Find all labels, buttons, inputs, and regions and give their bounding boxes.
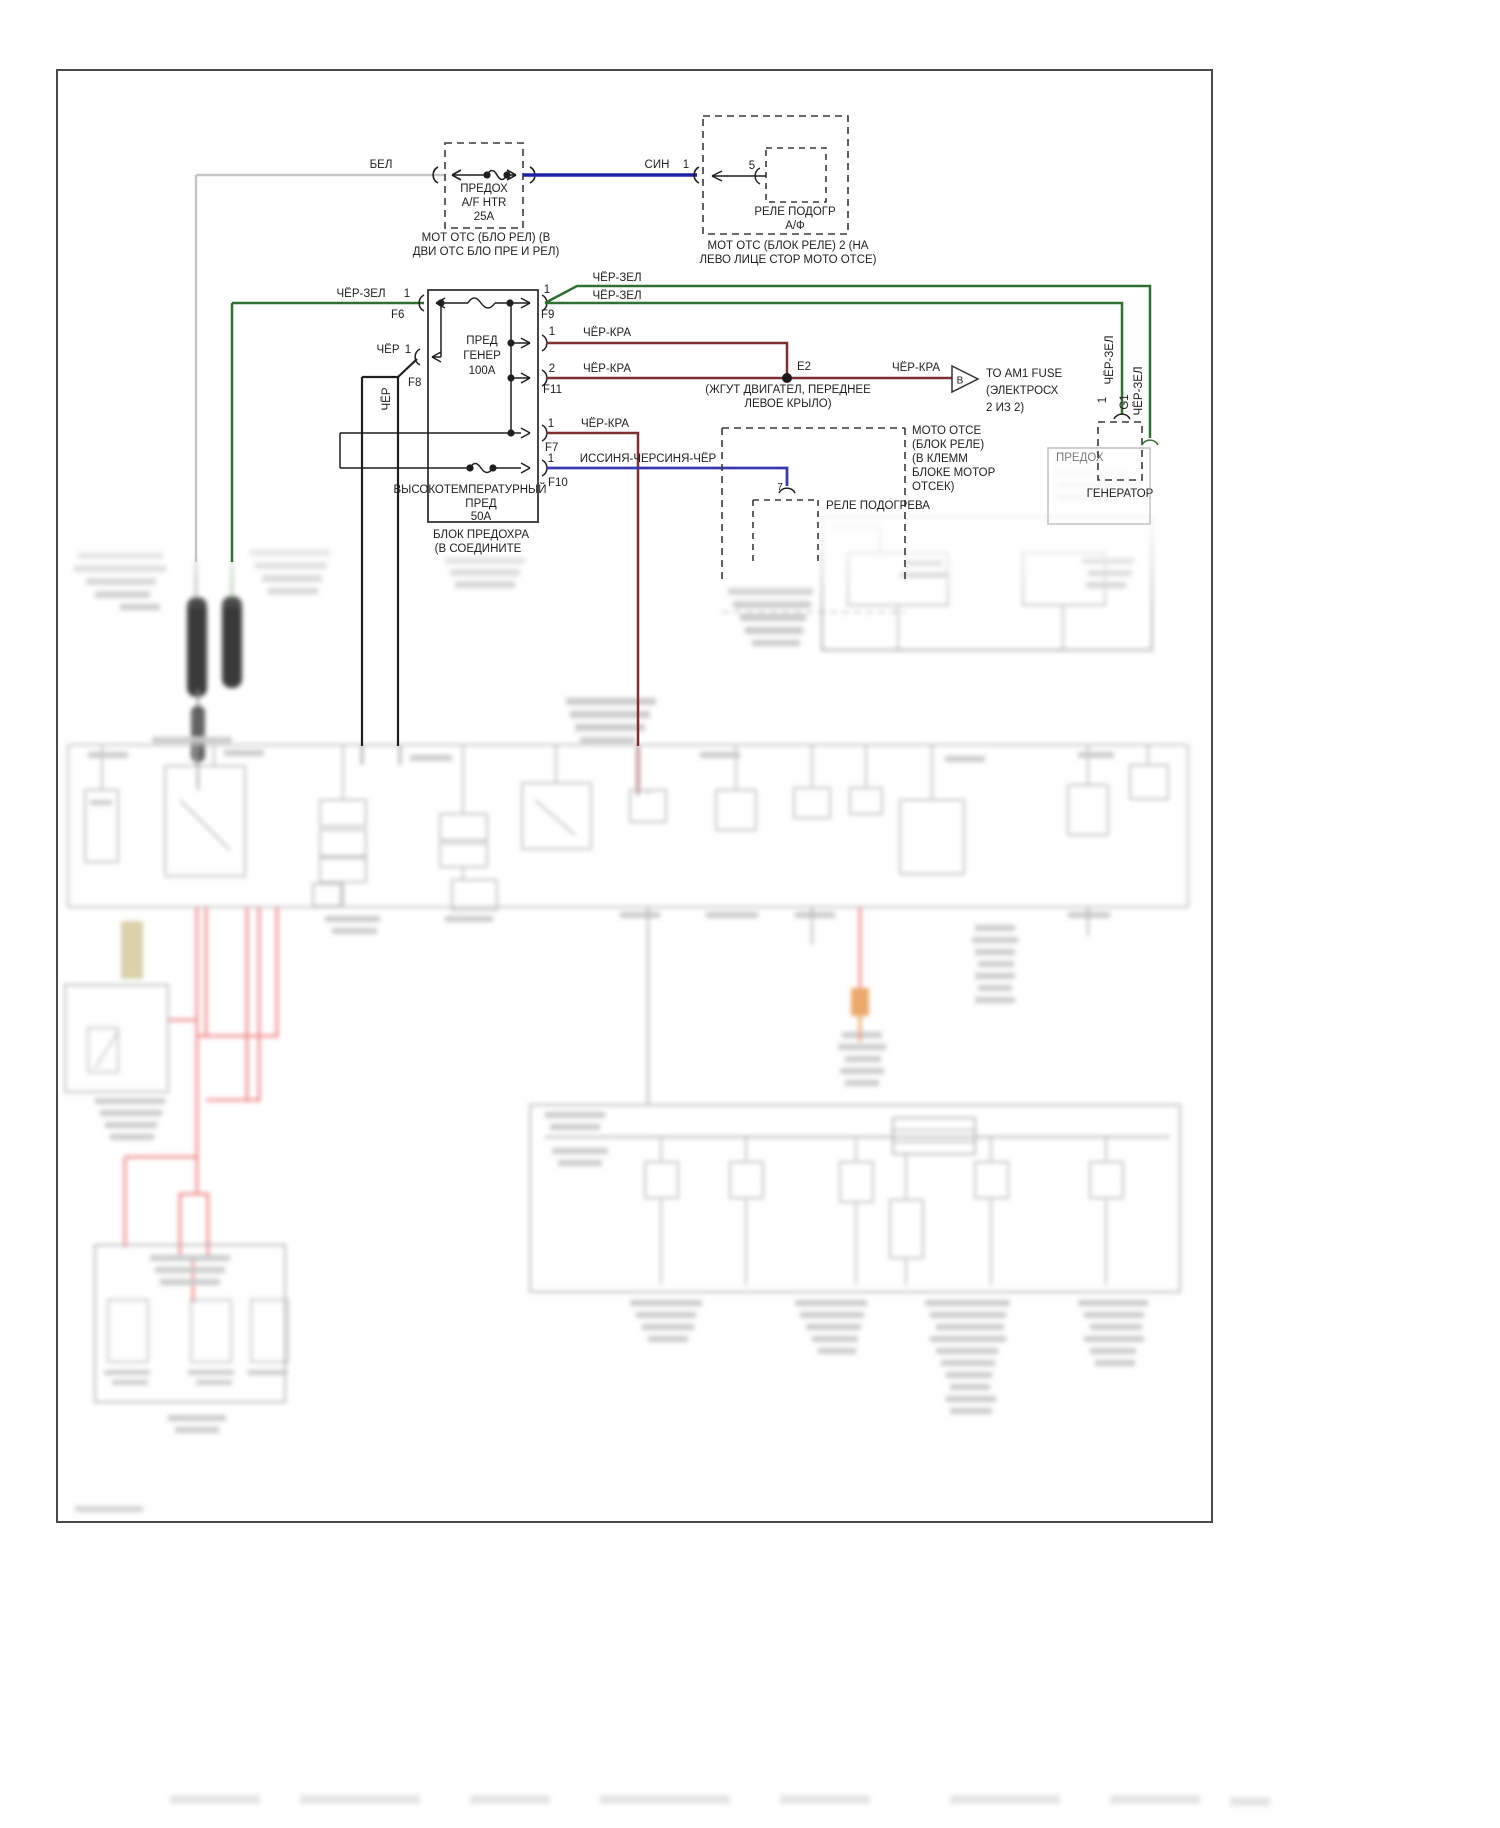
- fuse-block-location: (В СОЕДИНИТЕ: [435, 543, 522, 555]
- am1-note: 2 ИЗ 2): [986, 402, 1024, 414]
- wire-label-cher-rot: ЧЁР: [381, 387, 393, 410]
- fuse-ht-label: ПРЕД: [465, 498, 497, 510]
- fuse-af-htr-label: A/F HTR: [462, 197, 507, 209]
- terminal-f11: F11: [543, 384, 562, 396]
- relay-af-label: РЕЛЕ ПОДОГР: [754, 206, 836, 218]
- generator-label: ГЕНЕРАТОР: [1087, 488, 1154, 500]
- relay-af-location: ЛЕВО ЛИЦЕ СТОР МОТО ОТСЕ): [699, 254, 876, 266]
- wire-label-cher-kra: ЧЁР-КРА: [583, 327, 631, 339]
- wire-label-cher-zel-rot: ЧЁР-ЗЕЛ: [1104, 335, 1116, 384]
- blurred-schematic-region: [65, 470, 1270, 1806]
- e2-location: ЛЕВОЕ КРЫЛО): [744, 398, 831, 410]
- predoh-label: ПРЕДОХ: [1056, 452, 1104, 464]
- wiring-diagram-page: БЕЛ ПРЕДОХ A/F HTR 25A МОТ ОТС (БЛО РЕЛ)…: [0, 0, 1500, 1828]
- junction-e2: [782, 373, 792, 383]
- moto-otse-label: (БЛОК РЕЛЕ): [912, 439, 984, 451]
- rele-podogreva-label: РЕЛЕ ПОДОГРЕВА: [826, 500, 930, 512]
- connector-orange: [851, 988, 869, 1016]
- e2-location: (ЖГУТ ДВИГАТЕЛ, ПЕРЕДНЕЕ: [705, 384, 871, 396]
- relay-af-label: А/Ф: [785, 220, 805, 232]
- wire-label-cher-zel: ЧЁР-ЗЕЛ: [592, 272, 641, 284]
- wire-label-cher-kra: ЧЁР-КРА: [892, 362, 940, 374]
- relay-af-inner-box: [766, 148, 826, 202]
- moto-otse-label: (В КЛЕММ: [912, 453, 968, 465]
- wire-label-sin: СИН: [645, 159, 670, 171]
- moto-otse-label: ОТСЕК): [912, 481, 955, 493]
- fuse-block-location: БЛОК ПРЕДОХРА: [433, 529, 529, 541]
- fuse-ht-rating: 50А: [471, 511, 492, 523]
- offpage-arrow-letter: B: [957, 376, 964, 387]
- moto-otse-label: МОТО ОТСЕ: [912, 425, 981, 437]
- wire-label-issinya: ИССИНЯ-ЧЕРСИНЯ-ЧЁР: [580, 453, 717, 465]
- wire-label-cher-kra: ЧЁР-КРА: [581, 418, 629, 430]
- pin-number: 1: [683, 159, 689, 171]
- fuse-af-location: ДВИ ОТС БЛО ПРЕ И РЕЛ): [413, 246, 560, 258]
- pin-number: 5: [749, 160, 755, 172]
- fuse-af-location: МОТ ОТС (БЛО РЕЛ) (В: [422, 232, 551, 244]
- am1-note: (ЭЛЕКТРОСХ: [986, 385, 1059, 397]
- wire-label-cher-kra: ЧЁР-КРА: [583, 363, 631, 375]
- wire-label-cher-zel: ЧЁР-ЗЕЛ: [592, 290, 641, 302]
- terminal-f6: F6: [391, 309, 404, 321]
- pin-number: 1: [404, 288, 410, 300]
- wire-label-cher-zel-rot: ЧЁР-ЗЕЛ: [1133, 366, 1145, 415]
- pin-number: 1: [549, 326, 555, 338]
- terminal-g1: G1: [1119, 394, 1131, 409]
- terminal-f10: F10: [548, 477, 568, 489]
- fuse-gen-label: ПРЕД: [466, 335, 498, 347]
- wiring-diagram: БЕЛ ПРЕДОХ A/F HTR 25A МОТ ОТС (БЛО РЕЛ)…: [0, 0, 1500, 1828]
- am1-note: ТО AM1 FUSE: [986, 368, 1062, 380]
- pin-number: 1: [405, 344, 411, 356]
- moto-otse-label: БЛОКЕ МОТОР: [912, 467, 996, 479]
- terminal-f8: F8: [408, 377, 421, 389]
- terminal-e2: E2: [797, 361, 811, 373]
- fuse-gen-rating: 100А: [469, 365, 496, 377]
- fuse-ht-label: ВЫСОКОТЕМПЕРАТУРНЫЙ: [394, 483, 547, 496]
- wire-cher-zel-upper: [545, 286, 1150, 438]
- pin-number: 1: [548, 418, 554, 430]
- wire-cher-zel-lower: [545, 303, 1122, 414]
- fuse-af-htr-label: ПРЕДОХ: [460, 183, 508, 195]
- relay-af-location: МОТ ОТС (БЛОК РЕЛЕ) 2 (НА: [708, 240, 869, 252]
- pin-number: 1: [544, 284, 550, 296]
- pin-number: 1: [1097, 397, 1109, 403]
- fuse-gen-label: ГЕНЕР: [463, 350, 501, 362]
- wire-label-cher-zel: ЧЁР-ЗЕЛ: [336, 288, 385, 300]
- wire-label-cher: ЧЁР: [376, 344, 399, 356]
- pin-number: 2: [549, 363, 555, 375]
- fuse-af-htr-rating: 25A: [474, 211, 495, 223]
- wire-label-bel: БЕЛ: [370, 159, 393, 171]
- pin-number: 1: [548, 453, 554, 465]
